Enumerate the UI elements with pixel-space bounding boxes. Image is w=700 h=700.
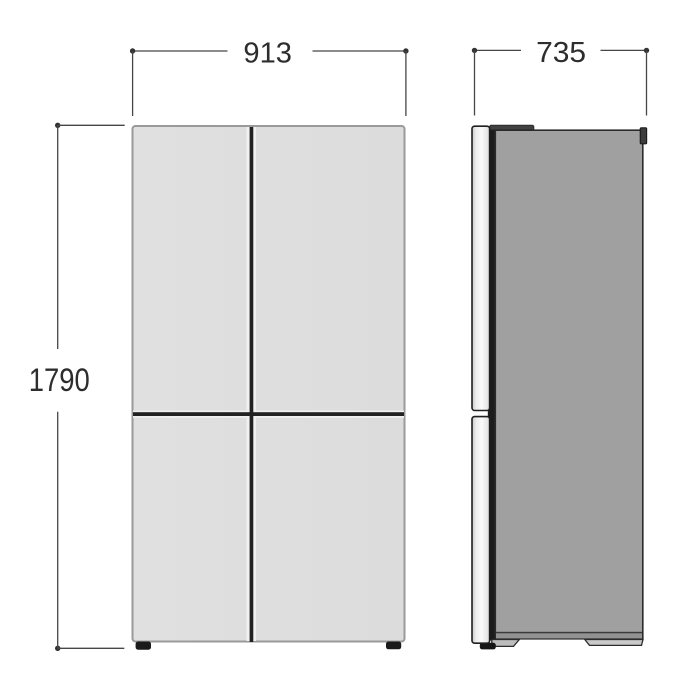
- svg-text:1790: 1790: [29, 362, 90, 398]
- svg-text:735: 735: [536, 37, 586, 69]
- svg-text:913: 913: [243, 37, 292, 69]
